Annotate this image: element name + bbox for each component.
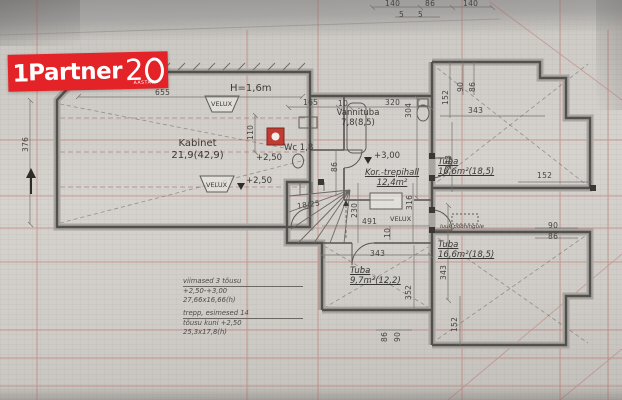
floorplan-photo: 140 86 140 5 5 1Partner2 AASTAT 655 H=1,… — [0, 0, 622, 400]
level-250-b: +2,50 — [246, 176, 272, 186]
dim-316: 316 — [405, 195, 414, 210]
level-250-a: +2,50 — [256, 153, 282, 163]
dim-ne-343h: 343 — [468, 106, 483, 115]
dim-kabinet-width: 655 — [155, 88, 170, 97]
logo-zero-ring-icon — [144, 57, 164, 83]
dim-s-152: 152 — [450, 317, 459, 332]
attic-hatch-label: luuk pööningule — [440, 224, 484, 230]
level-300: +3,00 — [374, 151, 400, 161]
dim-86m: 86 — [330, 162, 339, 172]
note-line-6: 25,3x17,8(h) — [183, 328, 303, 337]
paper-fold-line — [0, 19, 500, 35]
dim-top-86: 86 — [425, 0, 435, 8]
dim-top-5a: 5 — [399, 10, 404, 19]
note-line-2: +2,50-+3,00 — [183, 287, 303, 296]
dim-10a: 10 — [338, 99, 348, 108]
dim-10b: 10 — [383, 228, 392, 238]
dim-top-140a: 140 — [385, 0, 400, 8]
partner-logo: 1Partner2 AASTAT — [8, 51, 169, 92]
dim-ne-152: 152 — [441, 90, 450, 105]
height-note: H=1,6m — [230, 83, 272, 94]
room-wc: Wc 1,8 — [284, 143, 313, 153]
logo-subtext: AASTAT — [134, 80, 155, 85]
dim-s-90: 90 — [393, 332, 402, 342]
section-arrow-icon — [26, 168, 36, 194]
dim-s-343v: 343 — [439, 265, 448, 280]
room-kabinet: Kabinet 21,9(42,9) — [150, 138, 245, 162]
chimney-symbol — [267, 128, 284, 145]
vannituba-toilet — [417, 105, 429, 121]
velux-label-2: VELUX — [206, 181, 227, 189]
dim-top-140b: 140 — [463, 0, 478, 8]
dim-304: 304 — [404, 103, 413, 118]
note-line-5: tõusu kuni +2,50 — [183, 319, 303, 328]
dim-s-343h: 343 — [370, 249, 385, 258]
note-line-3: 27,66x16,66(h) — [183, 296, 303, 305]
room-tuba-s: Tuba 9,7m²(12,2) — [350, 266, 420, 286]
attic-hatch-outline — [452, 214, 478, 224]
dim-e-152: 152 — [537, 171, 552, 180]
level-marker-icon-a — [237, 183, 245, 190]
note-line-1: viimased 3 tõusu — [183, 277, 303, 287]
room-trepihall: Kor.-trepihall 12,4m² — [352, 168, 432, 188]
dim-kabinet-height: 376 — [21, 137, 30, 152]
dim-top-5b: 5 — [418, 10, 423, 19]
dim-491: 491 — [362, 217, 377, 226]
wc-toilet — [293, 154, 304, 168]
dim-110: 110 — [246, 125, 255, 140]
dim-230: 230 — [350, 203, 359, 218]
room-tuba-ne: Tuba 16,6m²(18,5) — [438, 157, 506, 177]
logo-wordmark: Partner — [28, 58, 122, 86]
dim-e-86: 86 — [548, 232, 558, 241]
velux-label-1: VELUX — [211, 100, 232, 108]
level-marker-icon-b — [364, 157, 372, 164]
dim-352: 352 — [404, 285, 413, 300]
dim-320: 320 — [385, 98, 400, 107]
stair-notes: viimased 3 tõusu +2,50-+3,00 27,66x16,66… — [183, 277, 303, 337]
dim-ne-90: 90 — [456, 82, 465, 92]
velux-label-3: VELUX — [390, 215, 411, 223]
logo-one: 1 — [12, 59, 28, 87]
dim-165: 165 — [303, 98, 318, 107]
room-tuba-se: Tuba 16,6m²(18,5) — [438, 240, 506, 260]
dim-e-90: 90 — [548, 221, 558, 230]
room-vannituba: Vannituba 7,8(8,5) — [318, 108, 398, 128]
dim-ne-86: 86 — [468, 82, 477, 92]
dim-s-86: 86 — [380, 332, 389, 342]
note-line-4: trepp, esimesed 14 — [183, 309, 303, 319]
